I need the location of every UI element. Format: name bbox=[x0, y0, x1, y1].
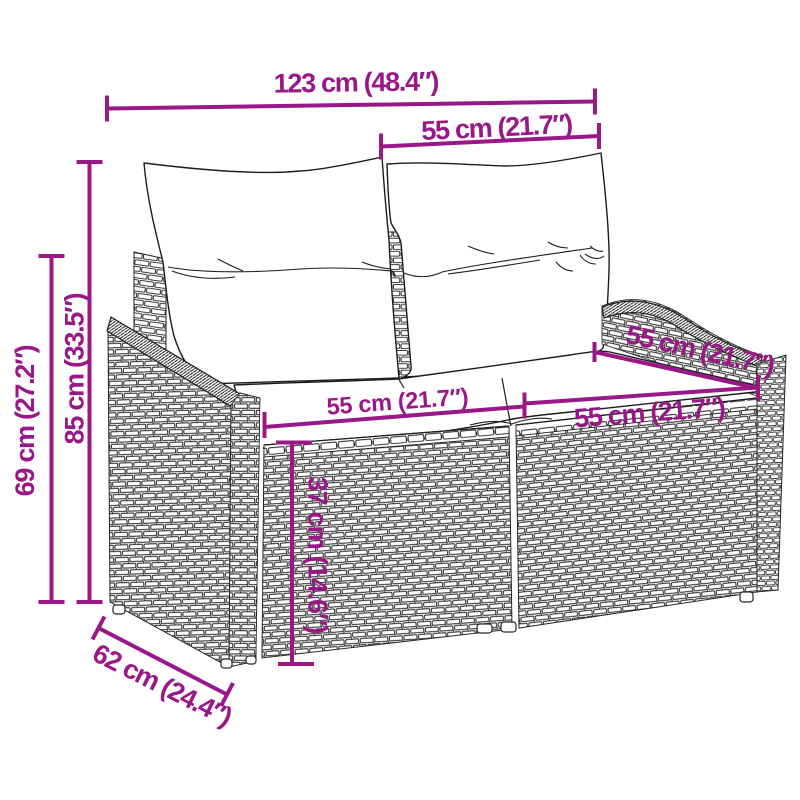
svg-text:37 cm (14.6″): 37 cm (14.6″) bbox=[303, 476, 333, 633]
svg-text:123 cm (48.4″): 123 cm (48.4″) bbox=[274, 66, 439, 98]
svg-text:55 cm (21.7″): 55 cm (21.7″) bbox=[421, 109, 573, 146]
svg-text:69 cm (27.2″): 69 cm (27.2″) bbox=[10, 345, 40, 496]
svg-text:85 cm (33.5″): 85 cm (33.5″) bbox=[60, 293, 90, 444]
